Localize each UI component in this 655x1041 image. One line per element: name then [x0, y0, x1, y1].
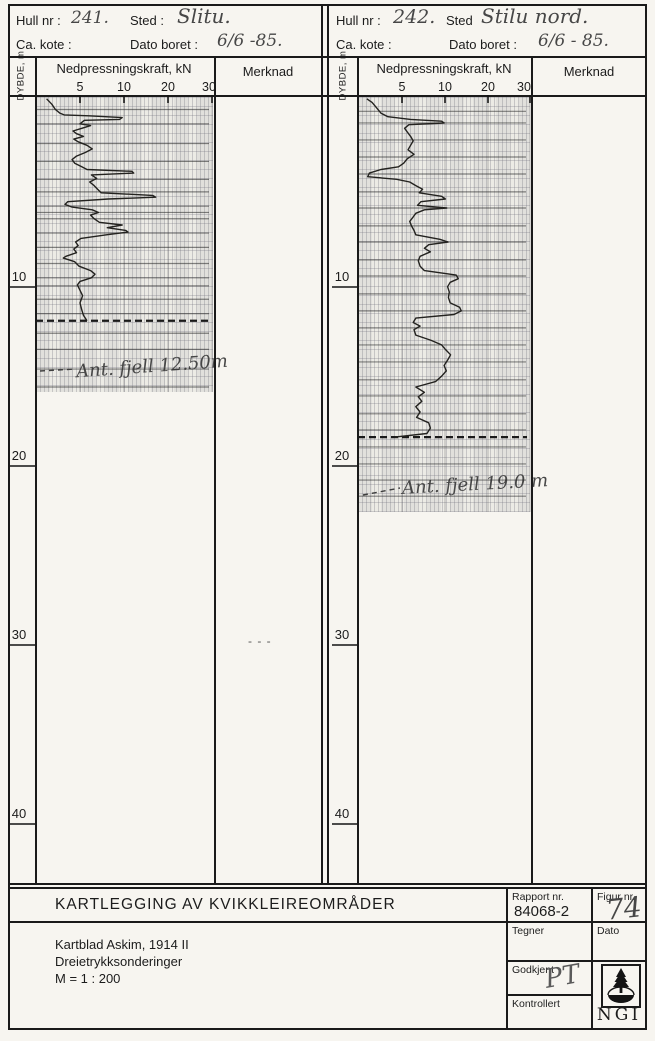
dybde-col-divider-left — [35, 56, 37, 883]
ngi-logo-text: NGI — [591, 1005, 647, 1025]
scanned-sounding-sheet: Hull nr : 241. Sted : Slitu. Ca. kote : … — [0, 0, 655, 1041]
figure-title: KARTLEGGING AV KVIKKLEIREOMRÅDER — [55, 896, 396, 914]
title-line-2: Dreietrykksonderinger — [55, 953, 182, 970]
table-divider-b — [327, 4, 329, 885]
rapport-nr-label: Rapport nr. — [512, 891, 564, 903]
titleblock-bottom-rule — [8, 1028, 647, 1030]
dato-label: Dato — [597, 925, 619, 937]
sted-value-right: Stilu nord. — [481, 4, 588, 28]
depth-30-right: 30 — [329, 627, 355, 642]
merknad-header-left: Merknad — [214, 64, 322, 79]
x-tick-10-right: 10 — [430, 80, 460, 94]
x-tick-20-right: 20 — [473, 80, 503, 94]
title-line-3: M = 1 : 200 — [55, 970, 120, 987]
x-tick-30-right: 30 — [509, 80, 539, 94]
dato-value-right: 6/6 - 85. — [538, 31, 609, 51]
chart-bottom-rule — [8, 883, 647, 885]
hull-nr-label-left: Hull nr : — [16, 13, 61, 28]
dato-label-right: Dato boret : — [449, 37, 517, 52]
dato-label-left: Dato boret : — [130, 37, 198, 52]
table-divider-a — [321, 4, 323, 885]
dybde-col-divider-right — [357, 56, 359, 883]
border-right — [645, 4, 647, 1030]
titleblock-top-rule — [8, 887, 647, 889]
merknad-note-left: - - - — [248, 634, 272, 648]
border-top — [8, 4, 647, 6]
merknad-divider-right — [531, 56, 533, 883]
sted-label-left: Sted : — [130, 13, 164, 28]
merknad-divider-left — [214, 56, 216, 883]
kontrollert-label: Kontrollert — [512, 998, 560, 1010]
hull-nr-value-left: 241. — [71, 8, 109, 28]
title-line-1: Kartblad Askim, 1914 II — [55, 936, 189, 953]
titleblock-col-divider-a — [506, 887, 508, 1030]
axis-rule — [8, 95, 647, 97]
chart-strip-left — [36, 97, 213, 392]
godkjent-signature: PT — [543, 959, 583, 995]
sted-value-left: Slitu. — [177, 4, 231, 28]
hull-nr-label-right: Hull nr : — [336, 13, 381, 28]
hull-nr-value-right: 242. — [393, 6, 435, 28]
merknad-header-right: Merknad — [531, 64, 647, 79]
depth-40-right: 40 — [329, 806, 355, 821]
x-tick-5-left: 5 — [65, 80, 95, 94]
sted-label-right: Sted — [446, 13, 473, 28]
titleblock-row-rule — [8, 921, 647, 923]
x-tick-5-right: 5 — [387, 80, 417, 94]
x-tick-10-left: 10 — [109, 80, 139, 94]
ngi-logo-box — [601, 964, 641, 1008]
border-left — [8, 4, 10, 1030]
depth-20-right: 20 — [329, 448, 355, 463]
x-tick-20-left: 20 — [153, 80, 183, 94]
ngi-tree-icon — [603, 966, 639, 1006]
dato-value-left: 6/6 -85. — [217, 31, 283, 51]
force-axis-label-left: Nedpressningskraft, kN — [35, 61, 213, 76]
x-tick-30-left: 30 — [194, 80, 224, 94]
chart-strip-right — [358, 97, 530, 512]
figur-nr-value: 74 — [604, 890, 643, 927]
rapport-nr-value: 84068-2 — [514, 903, 569, 920]
depth-10-right: 10 — [329, 269, 355, 284]
header-rule — [8, 56, 647, 58]
force-axis-label-right: Nedpressningskraft, kN — [357, 61, 531, 76]
tegner-label: Tegner — [512, 925, 544, 937]
